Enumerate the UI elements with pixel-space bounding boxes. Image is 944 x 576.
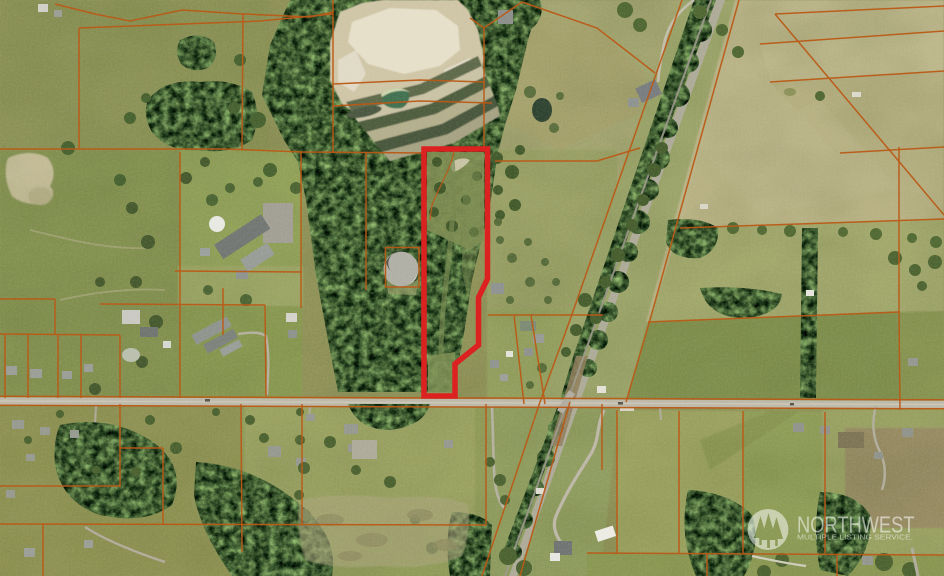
svg-text:MULTIPLE LISTING SERVICE.: MULTIPLE LISTING SERVICE. (797, 534, 913, 542)
